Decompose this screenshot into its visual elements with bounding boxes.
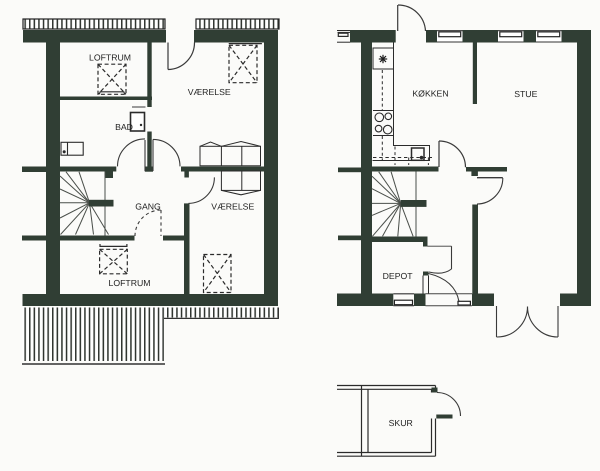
svg-text:KØKKEN: KØKKEN <box>412 88 448 98</box>
svg-text:DEPOT: DEPOT <box>383 271 414 281</box>
svg-text:VÆRELSE: VÆRELSE <box>188 87 231 97</box>
svg-text:BAD: BAD <box>115 122 133 132</box>
svg-text:STUE: STUE <box>514 89 537 99</box>
svg-text:SKUR: SKUR <box>389 418 413 428</box>
svg-text:LOFTRUM: LOFTRUM <box>109 278 151 288</box>
svg-text:VÆRELSE: VÆRELSE <box>211 202 254 212</box>
svg-text:LOFTRUM: LOFTRUM <box>89 52 131 62</box>
svg-text:GANG: GANG <box>135 202 161 212</box>
